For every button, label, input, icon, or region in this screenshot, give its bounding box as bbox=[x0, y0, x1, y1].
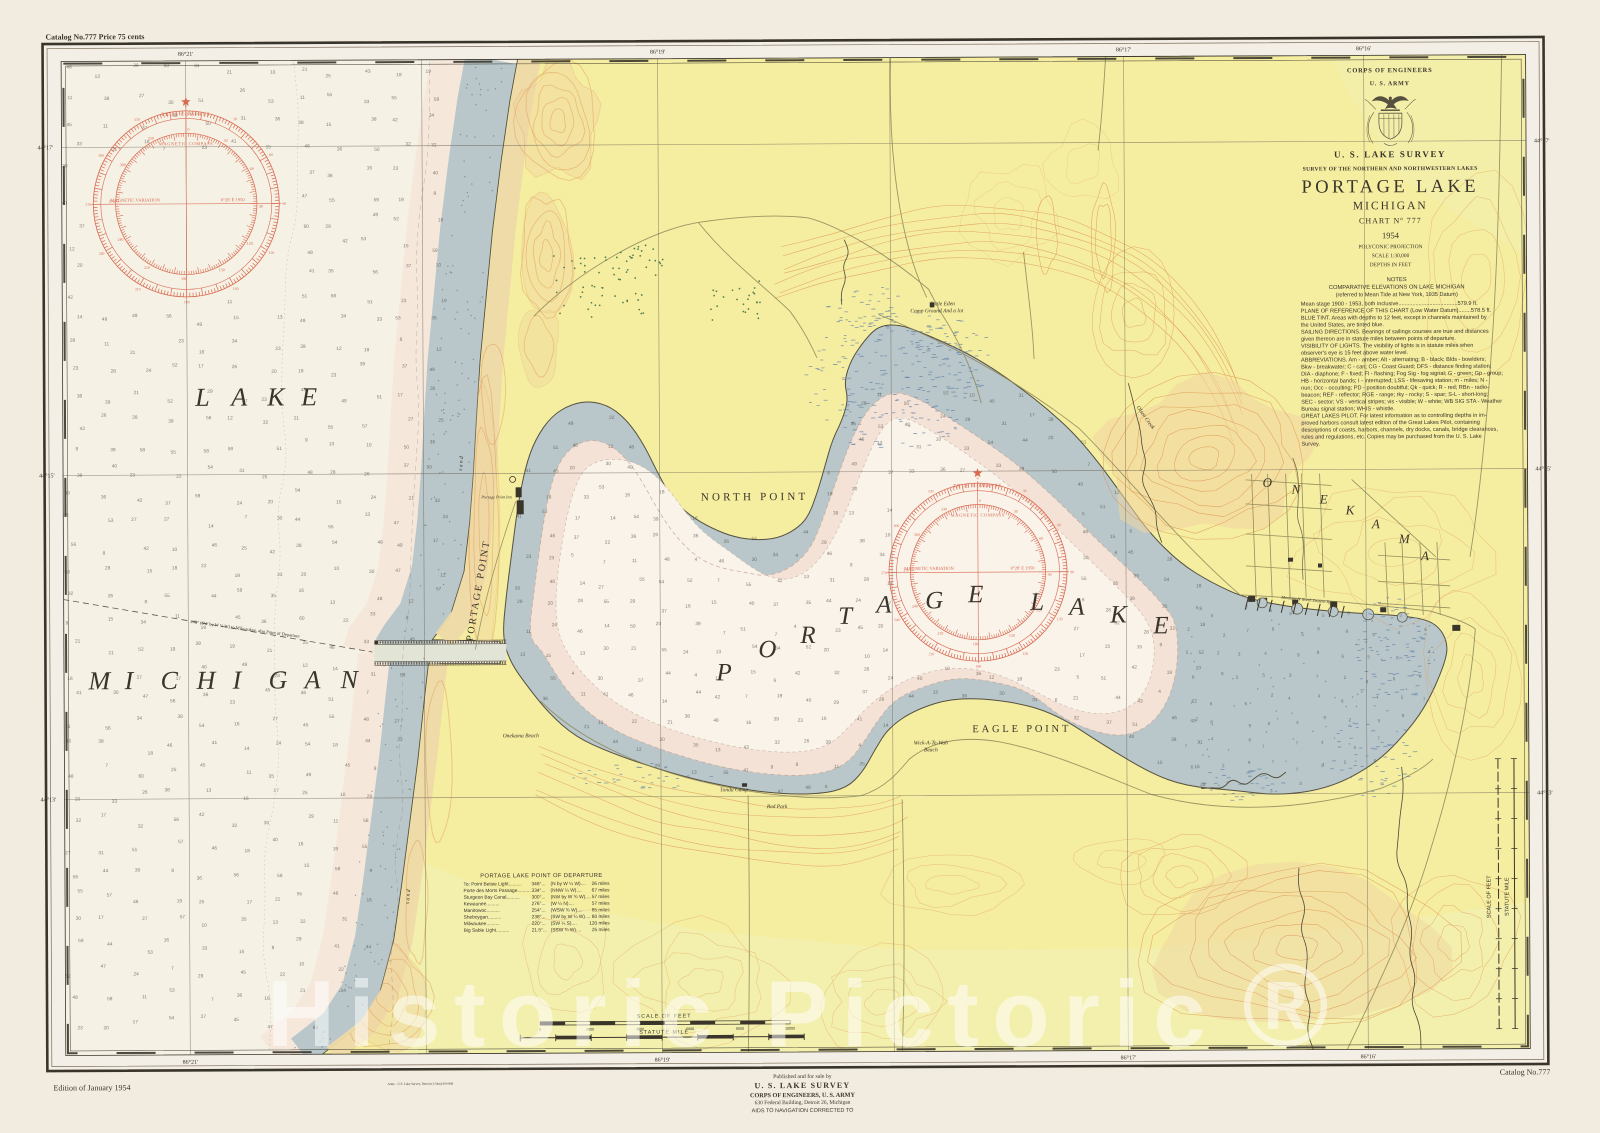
svg-text:43: 43 bbox=[1137, 698, 1143, 704]
svg-text:13: 13 bbox=[365, 512, 371, 518]
svg-text:30: 30 bbox=[264, 820, 270, 826]
svg-text:10: 10 bbox=[1196, 665, 1202, 671]
svg-text:21: 21 bbox=[294, 416, 300, 422]
svg-text:58: 58 bbox=[363, 818, 369, 824]
svg-text:40: 40 bbox=[550, 579, 556, 585]
svg-text:25: 25 bbox=[859, 761, 865, 767]
svg-text:57: 57 bbox=[178, 839, 184, 845]
svg-text:44: 44 bbox=[1022, 438, 1028, 444]
svg-text:30: 30 bbox=[659, 737, 665, 743]
svg-text:DIA - diaphone; F - fixed; F: DIA - diaphone; F - fixed; Fl - flashing… bbox=[1301, 371, 1503, 378]
svg-text:53: 53 bbox=[361, 236, 367, 242]
svg-text:12: 12 bbox=[436, 347, 442, 353]
svg-text:35: 35 bbox=[693, 742, 699, 748]
svg-text:20: 20 bbox=[548, 601, 554, 607]
svg-text:26: 26 bbox=[804, 738, 810, 744]
svg-text:Onekama Beach: Onekama Beach bbox=[503, 733, 539, 739]
svg-text:SAILING DIRECTIONS. Bearings: SAILING DIRECTIONS. Bearings of sailings… bbox=[1301, 329, 1489, 336]
svg-text:57: 57 bbox=[362, 424, 368, 430]
svg-text:55: 55 bbox=[171, 450, 177, 456]
svg-text:Historic Pictoric: Historic Pictoric bbox=[267, 961, 1219, 1066]
svg-text:11: 11 bbox=[142, 994, 147, 1000]
svg-text:P: P bbox=[715, 659, 731, 686]
svg-text:20: 20 bbox=[271, 369, 277, 375]
svg-text:59: 59 bbox=[107, 996, 113, 1002]
svg-text:30: 30 bbox=[113, 690, 119, 696]
svg-text:Camp Ground And a lot: Camp Ground And a lot bbox=[910, 308, 963, 314]
svg-text:180: 180 bbox=[976, 665, 982, 669]
svg-text:300: 300 bbox=[894, 524, 900, 528]
svg-text:80 miles: 80 miles bbox=[592, 914, 610, 920]
svg-text:53: 53 bbox=[395, 315, 401, 321]
svg-text:11: 11 bbox=[227, 299, 232, 305]
svg-text:38: 38 bbox=[1048, 417, 1054, 423]
svg-text:38: 38 bbox=[98, 739, 104, 745]
svg-text:36: 36 bbox=[337, 147, 343, 153]
svg-text:53: 53 bbox=[268, 99, 274, 105]
svg-text:21: 21 bbox=[667, 720, 673, 726]
svg-text:51: 51 bbox=[740, 626, 746, 632]
svg-text:49: 49 bbox=[429, 367, 435, 373]
svg-text:330: 330 bbox=[148, 136, 154, 141]
svg-text:51: 51 bbox=[367, 299, 373, 305]
svg-text:56: 56 bbox=[234, 872, 240, 878]
svg-text:30: 30 bbox=[1023, 489, 1027, 493]
svg-text:120: 120 bbox=[247, 241, 253, 246]
svg-text:H: H bbox=[195, 666, 216, 695]
svg-text:8: 8 bbox=[400, 337, 403, 343]
svg-text:47: 47 bbox=[101, 964, 107, 970]
svg-text:38: 38 bbox=[298, 120, 304, 126]
svg-text:19: 19 bbox=[170, 647, 176, 653]
svg-text:15: 15 bbox=[239, 949, 245, 955]
svg-text:37: 37 bbox=[404, 463, 410, 469]
svg-text:A: A bbox=[229, 383, 247, 412]
svg-text:34: 34 bbox=[773, 552, 779, 558]
svg-text:38: 38 bbox=[371, 117, 377, 123]
svg-text:36: 36 bbox=[431, 315, 437, 321]
svg-text:240: 240 bbox=[99, 252, 105, 256]
svg-text:18: 18 bbox=[298, 368, 304, 374]
svg-text:27: 27 bbox=[142, 916, 148, 922]
svg-text:48: 48 bbox=[377, 540, 383, 546]
svg-text:40: 40 bbox=[1078, 482, 1084, 488]
svg-text:7: 7 bbox=[1262, 744, 1265, 749]
svg-text:300: 300 bbox=[98, 154, 104, 158]
svg-text:®: ® bbox=[1242, 940, 1329, 1072]
svg-text:14: 14 bbox=[610, 515, 616, 521]
svg-text:37: 37 bbox=[773, 602, 779, 608]
svg-text:35: 35 bbox=[515, 586, 521, 592]
svg-text:44: 44 bbox=[696, 690, 702, 696]
svg-text:26: 26 bbox=[108, 593, 114, 599]
svg-text:49: 49 bbox=[627, 465, 633, 471]
svg-text:14: 14 bbox=[604, 623, 610, 629]
svg-text:(NNW ¼ W)....: (NNW ¼ W).... bbox=[551, 888, 582, 894]
svg-text:2: 2 bbox=[1344, 675, 1347, 680]
svg-text:9: 9 bbox=[1323, 715, 1326, 720]
svg-text:TRUE COMPASS: TRUE COMPASS bbox=[953, 484, 1002, 489]
svg-text:28: 28 bbox=[864, 577, 870, 583]
svg-text:4: 4 bbox=[1296, 720, 1299, 725]
svg-text:49: 49 bbox=[102, 317, 108, 323]
svg-text:VISIBILITY OF LIGHTS. The vi: VISIBILITY OF LIGHTS. The visibility of … bbox=[1301, 343, 1473, 350]
svg-text:6: 6 bbox=[1210, 701, 1213, 706]
svg-text:7: 7 bbox=[1296, 767, 1299, 772]
svg-text:24: 24 bbox=[888, 675, 894, 681]
svg-text:16: 16 bbox=[1194, 764, 1200, 770]
svg-text:44: 44 bbox=[295, 517, 301, 523]
svg-text:7: 7 bbox=[211, 997, 214, 1003]
svg-text:17: 17 bbox=[397, 392, 403, 398]
svg-text:21: 21 bbox=[130, 350, 136, 356]
svg-text:M: M bbox=[1398, 531, 1411, 546]
svg-text:300°...: 300°... bbox=[532, 894, 546, 900]
svg-text:40: 40 bbox=[749, 601, 755, 607]
svg-text:25: 25 bbox=[302, 790, 308, 796]
svg-text:59: 59 bbox=[400, 672, 406, 678]
svg-text:19: 19 bbox=[441, 298, 447, 304]
svg-text:13: 13 bbox=[804, 574, 810, 580]
svg-text:220°...: 220°... bbox=[532, 921, 546, 927]
svg-text:44: 44 bbox=[211, 593, 217, 599]
svg-text:24: 24 bbox=[940, 414, 946, 420]
svg-text:4: 4 bbox=[1211, 736, 1214, 741]
svg-text:Little Eden: Little Eden bbox=[930, 301, 956, 307]
svg-text:86°21': 86°21' bbox=[183, 1059, 199, 1066]
svg-text:31: 31 bbox=[239, 468, 245, 474]
svg-text:56: 56 bbox=[166, 314, 172, 320]
svg-text:49: 49 bbox=[397, 543, 403, 549]
svg-text:NOTES: NOTES bbox=[1387, 277, 1407, 283]
svg-text:27: 27 bbox=[164, 517, 170, 523]
svg-text:24: 24 bbox=[371, 495, 377, 501]
svg-text:MAGNETIC COMPASS: MAGNETIC COMPASS bbox=[159, 141, 213, 146]
svg-text:54: 54 bbox=[199, 723, 205, 729]
svg-text:35: 35 bbox=[1162, 604, 1168, 610]
svg-text:15: 15 bbox=[750, 669, 756, 675]
svg-text:55: 55 bbox=[78, 888, 84, 894]
svg-text:13: 13 bbox=[520, 652, 526, 658]
svg-text:330: 330 bbox=[928, 489, 934, 493]
svg-text:53: 53 bbox=[148, 950, 154, 956]
svg-text:150: 150 bbox=[1009, 633, 1015, 638]
svg-text:54: 54 bbox=[634, 514, 640, 520]
svg-text:10: 10 bbox=[936, 437, 942, 443]
svg-text:39: 39 bbox=[77, 473, 83, 479]
svg-text:23: 23 bbox=[393, 166, 399, 172]
svg-text:47: 47 bbox=[395, 568, 401, 574]
svg-text:19: 19 bbox=[1167, 670, 1173, 676]
svg-text:32: 32 bbox=[775, 740, 781, 746]
svg-text:42: 42 bbox=[392, 117, 398, 123]
svg-text:Bkw - breakwater; C - can; C: Bkw - breakwater; C - can; CG - Coast Gu… bbox=[1301, 364, 1492, 371]
svg-text:4: 4 bbox=[572, 671, 575, 677]
svg-text:33: 33 bbox=[377, 317, 383, 323]
svg-text:14: 14 bbox=[883, 723, 889, 729]
svg-text:27: 27 bbox=[139, 93, 145, 99]
svg-text:23: 23 bbox=[178, 338, 184, 344]
svg-text:I: I bbox=[123, 666, 134, 695]
svg-text:23: 23 bbox=[275, 346, 281, 352]
svg-text:49: 49 bbox=[132, 313, 138, 319]
svg-text:Wick-A-Te-Wah: Wick-A-Te-Wah bbox=[914, 740, 948, 746]
svg-text:60: 60 bbox=[250, 166, 254, 171]
svg-text:27: 27 bbox=[273, 716, 279, 722]
svg-text:55: 55 bbox=[362, 844, 368, 850]
svg-text:630 Federal Building, Detroit: 630 Federal Building, Detroit 26, Michig… bbox=[755, 1100, 851, 1106]
svg-text:20: 20 bbox=[656, 621, 662, 627]
svg-text:60: 60 bbox=[304, 224, 310, 230]
svg-text:6: 6 bbox=[1424, 627, 1427, 632]
svg-text:9: 9 bbox=[1159, 642, 1162, 648]
svg-text:45: 45 bbox=[345, 763, 351, 769]
svg-text:47: 47 bbox=[394, 520, 400, 526]
svg-text:33: 33 bbox=[364, 639, 370, 645]
svg-text:24: 24 bbox=[552, 622, 558, 628]
svg-text:19: 19 bbox=[201, 625, 207, 631]
svg-text:23: 23 bbox=[798, 718, 804, 724]
svg-text:51: 51 bbox=[553, 445, 559, 451]
svg-text:54: 54 bbox=[988, 440, 994, 446]
svg-text:5: 5 bbox=[1378, 718, 1381, 723]
svg-text:20: 20 bbox=[1048, 435, 1054, 441]
svg-text:20: 20 bbox=[570, 465, 576, 471]
svg-text:40: 40 bbox=[1129, 734, 1135, 740]
svg-text:19: 19 bbox=[777, 693, 783, 699]
svg-text:48: 48 bbox=[664, 557, 670, 563]
svg-text:56: 56 bbox=[105, 726, 111, 732]
svg-text:44: 44 bbox=[613, 739, 619, 745]
svg-text:nun; Occ - occulting; PD - p: nun; Occ - occulting; PD - position doub… bbox=[1301, 385, 1489, 392]
svg-text:50: 50 bbox=[404, 445, 410, 451]
svg-text:27: 27 bbox=[408, 416, 414, 422]
svg-text:6: 6 bbox=[827, 471, 830, 477]
svg-text:A: A bbox=[1420, 548, 1429, 563]
svg-text:30: 30 bbox=[603, 646, 609, 652]
svg-text:22: 22 bbox=[176, 474, 182, 480]
svg-text:(referred to Mean Tide at New: (referred to Mean Tide at New York, 1935… bbox=[1336, 292, 1458, 299]
svg-text:N: N bbox=[339, 665, 359, 694]
svg-text:52: 52 bbox=[943, 390, 949, 396]
svg-text:25: 25 bbox=[241, 546, 247, 552]
svg-text:TRUE COMPASS: TRUE COMPASS bbox=[161, 113, 210, 118]
svg-text:Mean stage 1900 - 1953, both i: Mean stage 1900 - 1953, both inclusive..… bbox=[1301, 301, 1478, 308]
svg-text:34: 34 bbox=[137, 716, 143, 722]
svg-text:26: 26 bbox=[653, 532, 659, 538]
svg-text:PORTAGE LAKE POINT OF DEPARTUR: PORTAGE LAKE POINT OF DEPARTURE bbox=[480, 873, 602, 880]
svg-text:11: 11 bbox=[246, 770, 251, 776]
svg-text:30: 30 bbox=[135, 868, 141, 874]
svg-text:11: 11 bbox=[333, 818, 338, 824]
svg-text:24: 24 bbox=[443, 514, 449, 520]
svg-text:6: 6 bbox=[1268, 721, 1271, 726]
svg-text:180: 180 bbox=[184, 300, 190, 304]
svg-text:6: 6 bbox=[774, 678, 777, 684]
svg-text:Big Sable Light..........: Big Sable Light.......... bbox=[464, 928, 510, 934]
svg-text:47: 47 bbox=[302, 193, 308, 199]
svg-text:19: 19 bbox=[235, 573, 241, 579]
svg-text:52: 52 bbox=[172, 363, 178, 369]
svg-text:7: 7 bbox=[603, 560, 606, 566]
svg-text:9: 9 bbox=[272, 945, 275, 951]
svg-text:STATUTE MILE: STATUTE MILE bbox=[1504, 877, 1510, 916]
svg-text:17: 17 bbox=[433, 538, 439, 544]
svg-text:54: 54 bbox=[305, 742, 311, 748]
svg-text:17: 17 bbox=[1079, 653, 1085, 659]
svg-text:31: 31 bbox=[241, 116, 247, 122]
svg-text:20: 20 bbox=[301, 572, 307, 578]
svg-text:46: 46 bbox=[333, 891, 339, 897]
svg-text:Sturgeon Bay Canal..........: Sturgeon Bay Canal.......... bbox=[464, 895, 520, 901]
svg-text:36: 36 bbox=[261, 619, 267, 625]
svg-text:33: 33 bbox=[277, 572, 283, 578]
svg-text:36: 36 bbox=[693, 533, 699, 539]
svg-text:49: 49 bbox=[307, 250, 313, 256]
svg-text:210: 210 bbox=[937, 631, 943, 636]
svg-text:22: 22 bbox=[201, 563, 207, 569]
svg-text:32: 32 bbox=[68, 591, 74, 597]
svg-text:2: 2 bbox=[1271, 693, 1274, 698]
svg-text:MICHIGAN: MICHIGAN bbox=[1353, 200, 1428, 212]
svg-text:22: 22 bbox=[632, 719, 638, 725]
svg-text:39: 39 bbox=[300, 344, 306, 350]
svg-text:13: 13 bbox=[95, 74, 101, 80]
svg-text:16: 16 bbox=[67, 676, 73, 682]
svg-text:44: 44 bbox=[909, 694, 915, 700]
svg-text:K: K bbox=[1345, 502, 1356, 517]
svg-text:45: 45 bbox=[235, 615, 241, 621]
svg-text:4: 4 bbox=[1318, 693, 1321, 698]
svg-text:14: 14 bbox=[77, 314, 83, 320]
svg-text:4: 4 bbox=[695, 557, 698, 563]
svg-text:6: 6 bbox=[1115, 550, 1118, 556]
svg-text:43: 43 bbox=[744, 745, 750, 751]
svg-text:18: 18 bbox=[333, 742, 339, 748]
svg-text:13: 13 bbox=[206, 788, 212, 794]
svg-text:10: 10 bbox=[1157, 760, 1163, 766]
svg-text:10: 10 bbox=[172, 547, 178, 553]
svg-text:40: 40 bbox=[112, 464, 118, 470]
svg-text:26: 26 bbox=[240, 88, 246, 94]
svg-text:K: K bbox=[266, 382, 286, 411]
svg-text:(SW by W ¼ W)....: (SW by W ¼ W).... bbox=[551, 914, 591, 920]
svg-text:39: 39 bbox=[195, 641, 201, 647]
svg-text:15: 15 bbox=[233, 315, 239, 321]
svg-text:42: 42 bbox=[68, 295, 74, 301]
svg-text:18: 18 bbox=[438, 217, 444, 223]
svg-text:150: 150 bbox=[1023, 652, 1029, 656]
svg-text:21: 21 bbox=[409, 496, 415, 502]
svg-text:25: 25 bbox=[171, 767, 177, 773]
svg-text:58: 58 bbox=[140, 447, 146, 453]
svg-text:U. S. ARMY: U. S. ARMY bbox=[1370, 81, 1410, 87]
svg-text:41: 41 bbox=[516, 514, 522, 520]
svg-text:AIDS TO NAVIGATION CORRECTED T: AIDS TO NAVIGATION CORRECTED TO bbox=[752, 1108, 855, 1114]
svg-text:36: 36 bbox=[237, 993, 243, 999]
svg-text:53: 53 bbox=[599, 485, 605, 491]
svg-text:16: 16 bbox=[243, 796, 249, 802]
svg-text:23: 23 bbox=[549, 555, 555, 561]
svg-text:30: 30 bbox=[233, 117, 237, 121]
svg-text:270: 270 bbox=[85, 203, 91, 207]
svg-text:18: 18 bbox=[172, 565, 178, 571]
svg-text:s a n d: s a n d bbox=[458, 456, 465, 471]
svg-text:55: 55 bbox=[328, 425, 334, 431]
svg-text:55: 55 bbox=[604, 599, 610, 605]
svg-text:4: 4 bbox=[1158, 689, 1161, 695]
svg-text:51: 51 bbox=[277, 446, 283, 452]
svg-text:19: 19 bbox=[230, 644, 236, 650]
svg-text:7: 7 bbox=[723, 630, 726, 636]
svg-text:16: 16 bbox=[366, 897, 372, 903]
svg-text:11: 11 bbox=[632, 558, 637, 564]
svg-text:45: 45 bbox=[989, 399, 995, 405]
svg-text:60: 60 bbox=[1057, 523, 1061, 527]
svg-text:0°28' E 1950: 0°28' E 1950 bbox=[221, 197, 246, 202]
svg-text:2: 2 bbox=[1349, 717, 1352, 722]
svg-text:9: 9 bbox=[369, 868, 372, 874]
svg-text:32: 32 bbox=[232, 823, 238, 829]
svg-text:44: 44 bbox=[103, 868, 109, 874]
svg-text:45: 45 bbox=[1128, 550, 1134, 556]
svg-text:6: 6 bbox=[1221, 671, 1224, 676]
svg-text:41: 41 bbox=[334, 943, 340, 949]
svg-text:17: 17 bbox=[1029, 412, 1035, 418]
svg-text:A: A bbox=[302, 665, 320, 694]
svg-text:31: 31 bbox=[371, 672, 377, 678]
svg-text:44°15': 44°15' bbox=[1536, 465, 1552, 472]
svg-text:33: 33 bbox=[584, 494, 590, 500]
svg-text:M: M bbox=[87, 666, 111, 695]
svg-text:276°...: 276°... bbox=[532, 901, 546, 907]
svg-text:CORPS OF ENGINEERS: CORPS OF ENGINEERS bbox=[1347, 67, 1433, 74]
svg-text:12: 12 bbox=[69, 246, 75, 252]
svg-text:17: 17 bbox=[133, 1019, 139, 1025]
svg-text:0: 0 bbox=[188, 127, 190, 132]
svg-text:21: 21 bbox=[631, 646, 637, 652]
svg-text:MAGNETIC VARIATION: MAGNETIC VARIATION bbox=[904, 566, 954, 571]
svg-text:86°16': 86°16' bbox=[1356, 45, 1372, 52]
svg-text:51: 51 bbox=[1081, 440, 1087, 446]
svg-text:8: 8 bbox=[1402, 713, 1405, 718]
svg-text:9: 9 bbox=[1297, 653, 1300, 658]
svg-text:49: 49 bbox=[373, 212, 379, 218]
svg-text:60: 60 bbox=[138, 774, 144, 780]
svg-text:300: 300 bbox=[120, 162, 126, 167]
svg-text:30: 30 bbox=[224, 138, 228, 143]
svg-text:9: 9 bbox=[1317, 650, 1320, 655]
svg-text:53: 53 bbox=[542, 509, 548, 515]
svg-text:34: 34 bbox=[141, 619, 147, 625]
svg-text:O: O bbox=[1263, 475, 1273, 490]
svg-text:31: 31 bbox=[1002, 421, 1008, 427]
svg-text:15: 15 bbox=[266, 144, 272, 150]
svg-text:56: 56 bbox=[170, 698, 176, 704]
svg-text:32: 32 bbox=[435, 498, 441, 504]
svg-text:39: 39 bbox=[133, 63, 139, 69]
svg-text:31: 31 bbox=[830, 578, 836, 584]
svg-text:28: 28 bbox=[296, 543, 302, 549]
svg-text:Tondu Camp: Tondu Camp bbox=[720, 787, 748, 793]
svg-text:48: 48 bbox=[713, 718, 719, 724]
svg-text:28: 28 bbox=[330, 470, 336, 476]
svg-text:O: O bbox=[758, 636, 776, 663]
svg-text:6: 6 bbox=[1341, 654, 1344, 659]
svg-text:20: 20 bbox=[852, 486, 858, 492]
svg-text:11: 11 bbox=[300, 95, 305, 101]
svg-text:22: 22 bbox=[343, 618, 349, 624]
